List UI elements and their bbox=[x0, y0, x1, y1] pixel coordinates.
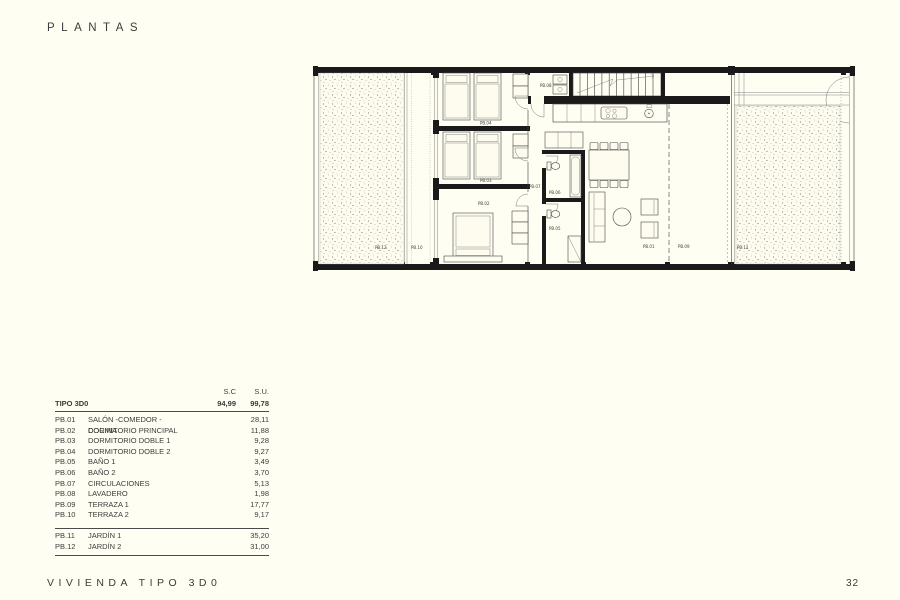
row-code: PB.08 bbox=[55, 489, 88, 500]
table-row: PB.06BAÑO 23,70 bbox=[55, 468, 269, 479]
row-name: CIRCULACIONES bbox=[88, 479, 192, 490]
row-su: 28,11 bbox=[236, 415, 269, 426]
label-dorm-doble1: PB.03 bbox=[480, 178, 492, 183]
row-code: PB.07 bbox=[55, 479, 88, 490]
label-jardin1: PB.11 bbox=[737, 245, 749, 250]
table-row: PB.02DORMITORIO PRINCIPAL11,88 bbox=[55, 426, 269, 437]
row-su: 31,00 bbox=[236, 542, 269, 553]
bed-dormitorio-principal bbox=[444, 213, 502, 262]
area-table: S.C S.U. TIPO 3D0 94,99 99,78 PB.01SALÓN… bbox=[55, 386, 269, 556]
table-row: PB.01SALÓN -COMEDOR - COCINA28,11 bbox=[55, 415, 269, 426]
footer-title: VIVIENDA TIPO 3D0 bbox=[47, 577, 221, 589]
row-name: TERRAZA 1 bbox=[88, 500, 192, 511]
sink-icon bbox=[645, 105, 654, 118]
page-number: 32 bbox=[846, 578, 859, 589]
beds-dormitorio-doble2 bbox=[443, 73, 501, 120]
label-terraza2: PB.10 bbox=[411, 245, 423, 250]
row-su: 9,27 bbox=[236, 447, 269, 458]
row-su: 3,49 bbox=[236, 457, 269, 468]
room-labels: PB.12 PB.10 PB.04 PB.03 PB.02 PB.08 PB.0… bbox=[375, 83, 749, 250]
row-name: BAÑO 1 bbox=[88, 457, 192, 468]
row-code: PB.11 bbox=[55, 531, 88, 542]
armchairs bbox=[641, 199, 658, 238]
label-salon: PB.01 bbox=[643, 244, 655, 249]
row-code: PB.10 bbox=[55, 510, 88, 521]
row-su: 5,13 bbox=[236, 479, 269, 490]
row-code: PB.12 bbox=[55, 542, 88, 553]
stairs bbox=[573, 73, 665, 96]
bathtub-icon bbox=[570, 155, 581, 197]
label-jardin2: PB.12 bbox=[375, 245, 387, 250]
row-code: PB.05 bbox=[55, 457, 88, 468]
toilet-icon-bath2 bbox=[547, 162, 560, 170]
label-bano1: PB.05 bbox=[549, 226, 561, 231]
kitchen-island bbox=[545, 132, 583, 148]
row-code: PB.09 bbox=[55, 500, 88, 511]
row-name: DORMITORIO PRINCIPAL bbox=[88, 426, 192, 437]
row-name: JARDÍN 1 bbox=[88, 531, 192, 542]
table-row: PB.07CIRCULACIONES5,13 bbox=[55, 479, 269, 490]
row-name: LAVADERO bbox=[88, 489, 192, 500]
cooktop-icon bbox=[601, 107, 627, 119]
row-su: 11,88 bbox=[236, 426, 269, 437]
table-row: PB.04DORMITORIO DOBLE 29,27 bbox=[55, 447, 269, 458]
label-circulaciones: PB.07 bbox=[529, 184, 541, 189]
row-name: JARDÍN 2 bbox=[88, 542, 192, 553]
bathrooms bbox=[542, 150, 585, 265]
label-lavadero: PB.08 bbox=[540, 83, 552, 88]
row-code: PB.04 bbox=[55, 447, 88, 458]
row-su: 17,77 bbox=[236, 500, 269, 511]
bedroom-west-wall bbox=[433, 73, 439, 264]
dining-table bbox=[589, 143, 629, 188]
lavadero bbox=[553, 73, 573, 96]
row-code: PB.02 bbox=[55, 426, 88, 437]
row-su: 3,70 bbox=[236, 468, 269, 479]
row-su: 9,28 bbox=[236, 436, 269, 447]
garden-left bbox=[320, 73, 407, 264]
wardrobes bbox=[512, 74, 528, 244]
floor-plan: PB.12 PB.10 PB.04 PB.03 PB.02 PB.08 PB.0… bbox=[313, 66, 855, 272]
type-label: TIPO 3D0 bbox=[55, 398, 165, 410]
row-name: BAÑO 2 bbox=[88, 468, 192, 479]
shower-icon bbox=[568, 236, 581, 262]
wall-bed2-bed3 bbox=[439, 184, 530, 189]
kitchen bbox=[545, 104, 667, 148]
beds-dormitorio-doble1 bbox=[443, 132, 501, 179]
floor-plan-drawing: PB.12 PB.10 PB.04 PB.03 PB.02 PB.08 PB.0… bbox=[313, 66, 855, 272]
row-su: 35,20 bbox=[236, 531, 269, 542]
row-code: PB.03 bbox=[55, 436, 88, 447]
label-bano2: PB.06 bbox=[549, 190, 561, 195]
col-header-su: S.U. bbox=[236, 386, 269, 398]
table-row: PB.05BAÑO 13,49 bbox=[55, 457, 269, 468]
row-name: TERRAZA 2 bbox=[88, 510, 192, 521]
table-row: PB.09TERRAZA 117,77 bbox=[55, 500, 269, 511]
label-dorm-principal: PB.02 bbox=[478, 201, 490, 206]
label-dorm-doble2: PB.04 bbox=[480, 121, 492, 126]
row-code: PB.06 bbox=[55, 468, 88, 479]
table-row: PB.08LAVADERO1,98 bbox=[55, 489, 269, 500]
toilet-icon-bath1 bbox=[547, 210, 560, 218]
interior-wall-bar bbox=[528, 96, 730, 117]
table-row: PB.11JARDÍN 135,20 bbox=[55, 531, 269, 542]
page-title: PLANTAS bbox=[47, 22, 144, 34]
row-name: DORMITORIO DOBLE 1 bbox=[88, 436, 192, 447]
row-su: 9,17 bbox=[236, 510, 269, 521]
row-code: PB.01 bbox=[55, 415, 88, 426]
col-header-sc: S.C bbox=[192, 386, 236, 398]
label-terraza1: PB.09 bbox=[678, 244, 690, 249]
room-rows: PB.01SALÓN -COMEDOR - COCINA28,11 PB.02D… bbox=[55, 415, 269, 521]
table-row: PB.10TERRAZA 29,17 bbox=[55, 510, 269, 521]
area-table-header: S.C S.U. bbox=[55, 386, 269, 398]
wall-bed1-bed2 bbox=[439, 126, 530, 131]
type-total-row: TIPO 3D0 94,99 99,78 bbox=[55, 398, 269, 412]
terrace-2 bbox=[412, 73, 431, 264]
row-name: DORMITORIO DOBLE 2 bbox=[88, 447, 192, 458]
type-su-value: 99,78 bbox=[236, 398, 269, 410]
coffee-table bbox=[613, 208, 631, 226]
table-row: PB.12JARDÍN 231,00 bbox=[55, 542, 269, 553]
type-sc-value: 94,99 bbox=[192, 398, 236, 410]
row-su: 1,98 bbox=[236, 489, 269, 500]
outdoor-rows: PB.11JARDÍN 135,20 PB.12JARDÍN 231,00 bbox=[55, 528, 269, 556]
garden-right bbox=[732, 73, 850, 264]
table-row: PB.03DORMITORIO DOBLE 19,28 bbox=[55, 436, 269, 447]
sofa bbox=[589, 192, 605, 242]
